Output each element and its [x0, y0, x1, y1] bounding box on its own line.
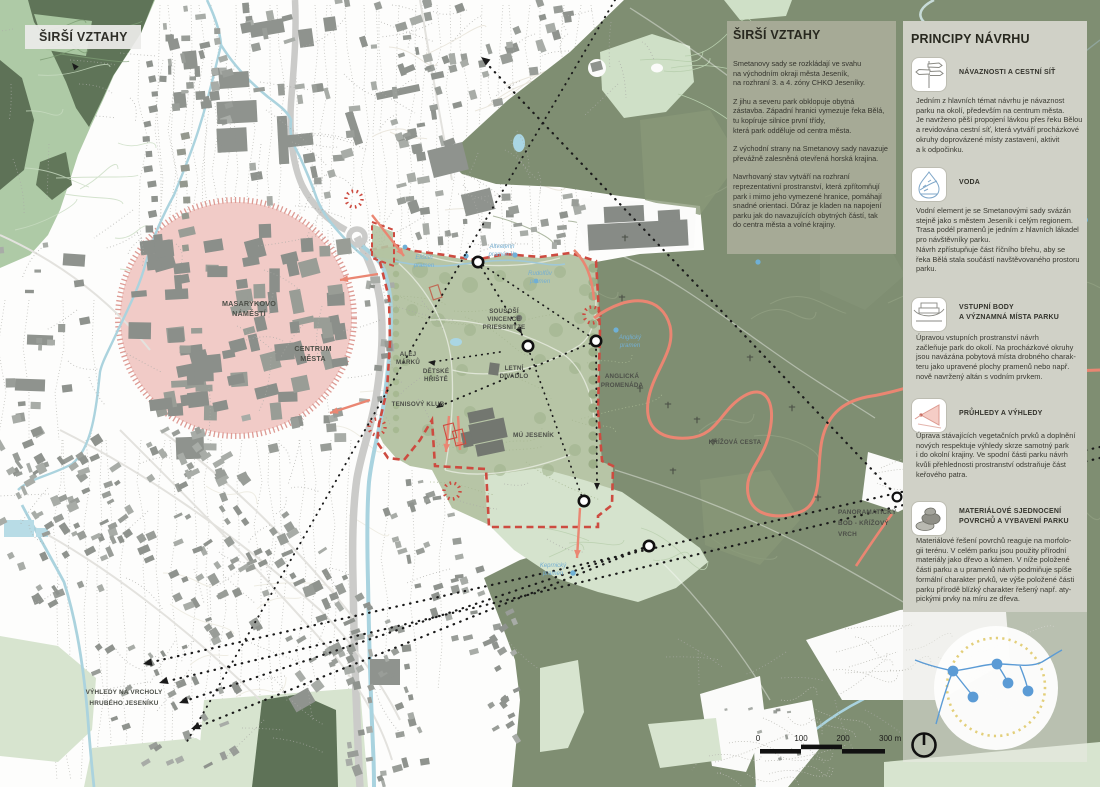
- svg-text:pramen: pramen: [413, 263, 435, 269]
- svg-text:HRUBÉHO JESENÍKU: HRUBÉHO JESENÍKU: [89, 698, 158, 707]
- svg-text:CENTRUM: CENTRUM: [294, 344, 331, 353]
- svg-text:DĚTSKÉ: DĚTSKÉ: [423, 367, 449, 375]
- svg-text:VRCH: VRCH: [838, 531, 857, 538]
- svg-text:VÝHLEDY NA VRCHOLY: VÝHLEDY NA VRCHOLY: [86, 687, 163, 696]
- svg-text:Altvaterin: Altvaterin: [488, 244, 515, 250]
- svg-text:Rudolfův: Rudolfův: [528, 270, 553, 277]
- svg-text:SOUSOŠÍ: SOUSOŠÍ: [489, 307, 519, 315]
- svg-text:PROMENÁDA: PROMENÁDA: [601, 382, 644, 389]
- svg-text:BOD - KŘÍŽOVÝ: BOD - KŘÍŽOVÝ: [838, 518, 889, 527]
- svg-text:Eliščin: Eliščin: [415, 255, 433, 261]
- svg-text:pramen: pramen: [529, 279, 551, 285]
- svg-text:KŘÍŽOVÁ CESTA: KŘÍŽOVÁ CESTA: [709, 438, 762, 446]
- svg-text:DIVADLO: DIVADLO: [500, 373, 529, 380]
- svg-text:pramen II.: pramen II.: [487, 252, 515, 258]
- svg-text:TENISOVÝ KLUB: TENISOVÝ KLUB: [392, 401, 445, 408]
- svg-text:Anglický: Anglický: [618, 335, 642, 341]
- svg-text:100: 100: [794, 734, 808, 743]
- svg-text:PRIESSNITZE: PRIESSNITZE: [483, 324, 526, 331]
- svg-text:MĚSTA: MĚSTA: [300, 354, 326, 363]
- svg-text:pramen: pramen: [619, 343, 641, 349]
- svg-text:LETNÍ: LETNÍ: [505, 364, 524, 372]
- svg-text:MASARYKOVO: MASARYKOVO: [222, 299, 276, 308]
- svg-text:ANGLICKÁ: ANGLICKÁ: [605, 373, 640, 380]
- svg-text:PANORAMATICKÝ: PANORAMATICKÝ: [838, 507, 897, 516]
- svg-text:200: 200: [836, 734, 850, 743]
- svg-text:NÁMĚSTÍ: NÁMĚSTÍ: [232, 309, 267, 318]
- svg-text:Keprnický: Keprnický: [540, 563, 567, 569]
- svg-text:MÚ JESENÍK: MÚ JESENÍK: [513, 430, 554, 439]
- svg-text:pramen: pramen: [542, 571, 564, 577]
- svg-text:HŘIŠTĚ: HŘIŠTĚ: [424, 375, 448, 383]
- svg-text:ALEJ: ALEJ: [400, 351, 417, 358]
- svg-text:0: 0: [756, 734, 761, 743]
- svg-text:VINCENCE: VINCENCE: [487, 316, 521, 323]
- svg-text:MÁRKŮ: MÁRKŮ: [396, 358, 420, 366]
